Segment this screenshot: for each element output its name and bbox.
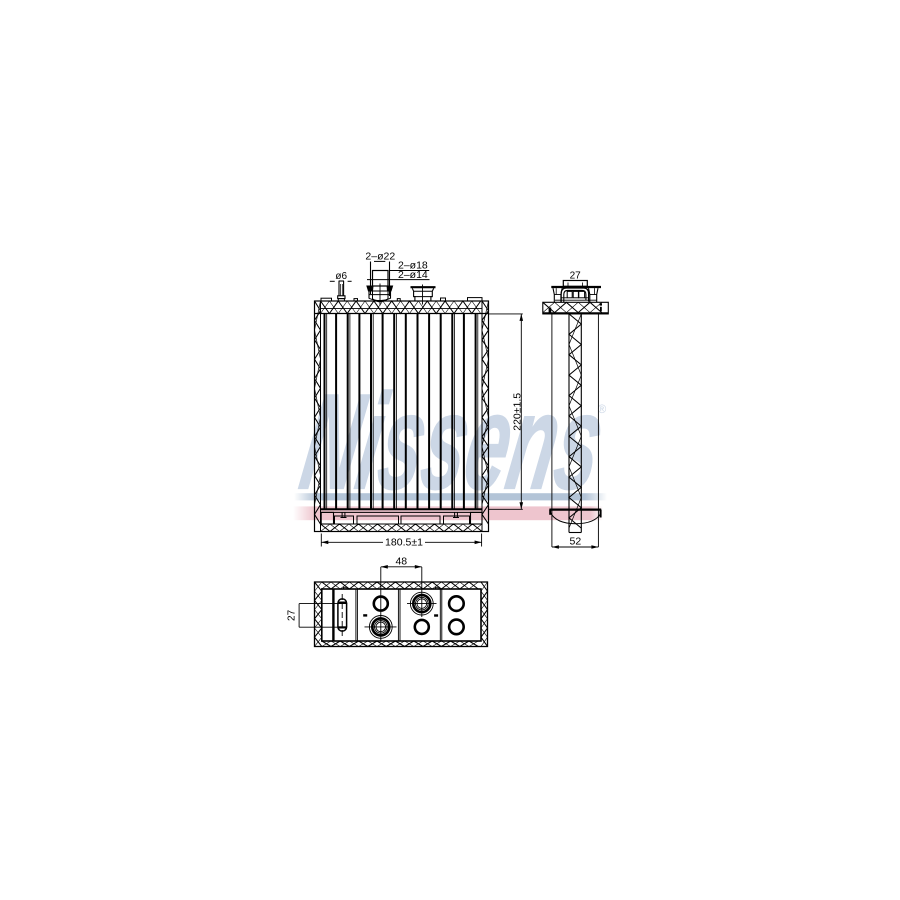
svg-text:ø6: ø6 [335, 271, 347, 282]
svg-text:48: 48 [395, 556, 407, 568]
svg-text:27: 27 [570, 270, 582, 281]
svg-text:220±1.5: 220±1.5 [511, 393, 523, 431]
svg-text:®: ® [598, 404, 607, 416]
svg-text:2–ø22: 2–ø22 [365, 251, 395, 263]
svg-text:27: 27 [287, 609, 298, 621]
svg-text:52: 52 [570, 535, 582, 547]
svg-text:180.5±1: 180.5±1 [385, 536, 423, 548]
